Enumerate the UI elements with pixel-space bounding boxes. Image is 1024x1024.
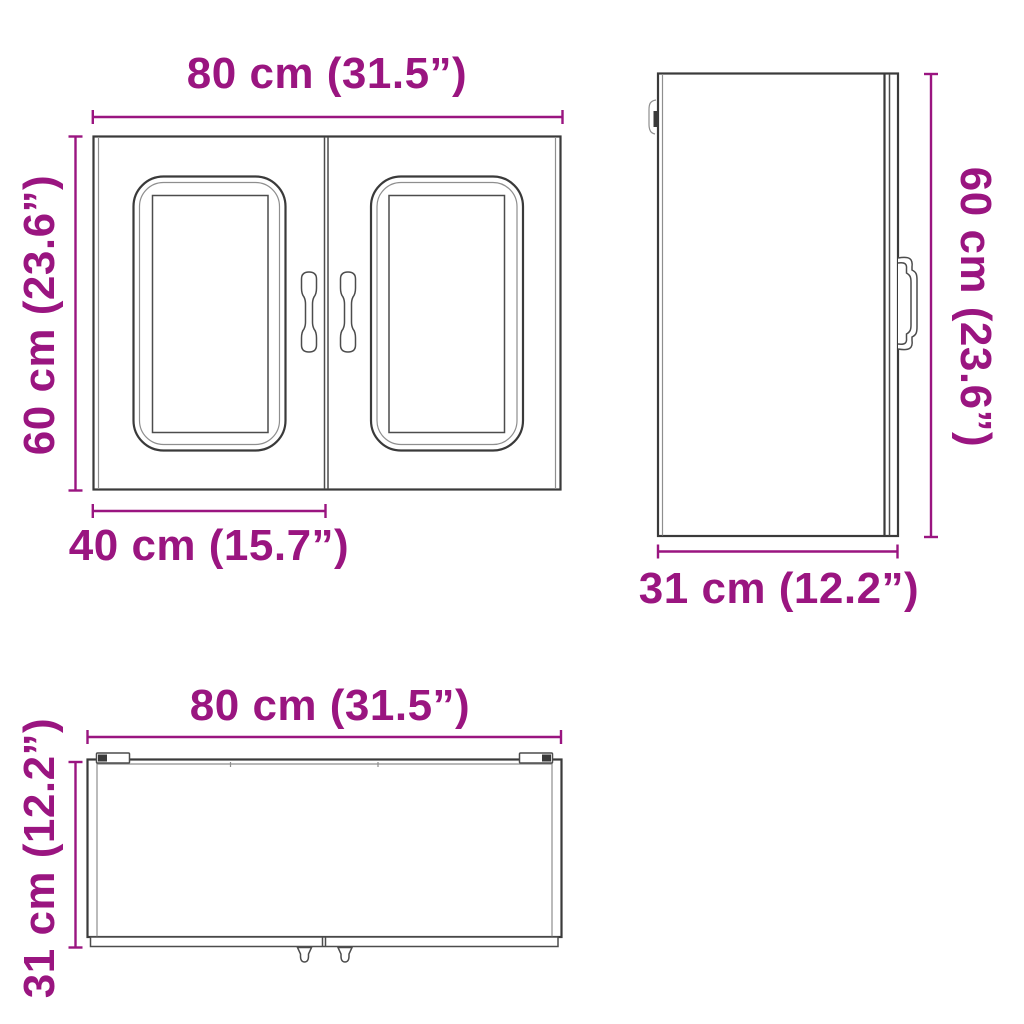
dim-line-bottom-width: [88, 730, 562, 744]
bottom-width-label: 80 cm (31.5”): [190, 684, 470, 728]
side-door-handle-outer: [898, 257, 917, 349]
dim-line-front-height: [69, 137, 83, 491]
side-wall-bracket-notch: [654, 111, 660, 127]
front-view-drawing: [69, 110, 563, 518]
front-door-width-label: 40 cm (15.7”): [69, 524, 349, 568]
dimension-diagram: 80 cm (31.5”) 60 cm (23.6”) 40 cm (15.7”…: [0, 0, 1024, 1024]
dim-line-side-depth: [658, 545, 898, 559]
bottom-left-door-handle: [298, 948, 312, 963]
cabinet-line-drawing: [0, 0, 1024, 1024]
side-cabinet-outline: [658, 74, 898, 537]
front-cabinet-outline: [94, 137, 561, 490]
dim-line-bottom-depth: [69, 762, 83, 948]
bottom-depth-label: 31 cm (12.2”): [18, 718, 62, 998]
dim-line-front-door-width: [93, 504, 326, 518]
dim-line-side-height: [924, 74, 938, 537]
bottom-right-door-handle: [338, 948, 352, 963]
bottom-view-drawing: [69, 730, 562, 962]
bottom-door-front-strip: [91, 937, 559, 947]
side-height-label: 60 cm (23.6”): [953, 167, 997, 447]
side-view-drawing: [649, 74, 938, 559]
front-height-label: 60 cm (23.6”): [18, 175, 62, 455]
bottom-right-wall-bracket-clip: [542, 755, 551, 762]
bottom-left-wall-bracket-clip: [98, 755, 107, 762]
front-width-label: 80 cm (31.5”): [187, 52, 467, 96]
bottom-cabinet-outline: [88, 760, 562, 938]
dim-line-front-width: [93, 110, 563, 124]
side-depth-label: 31 cm (12.2”): [639, 567, 919, 611]
